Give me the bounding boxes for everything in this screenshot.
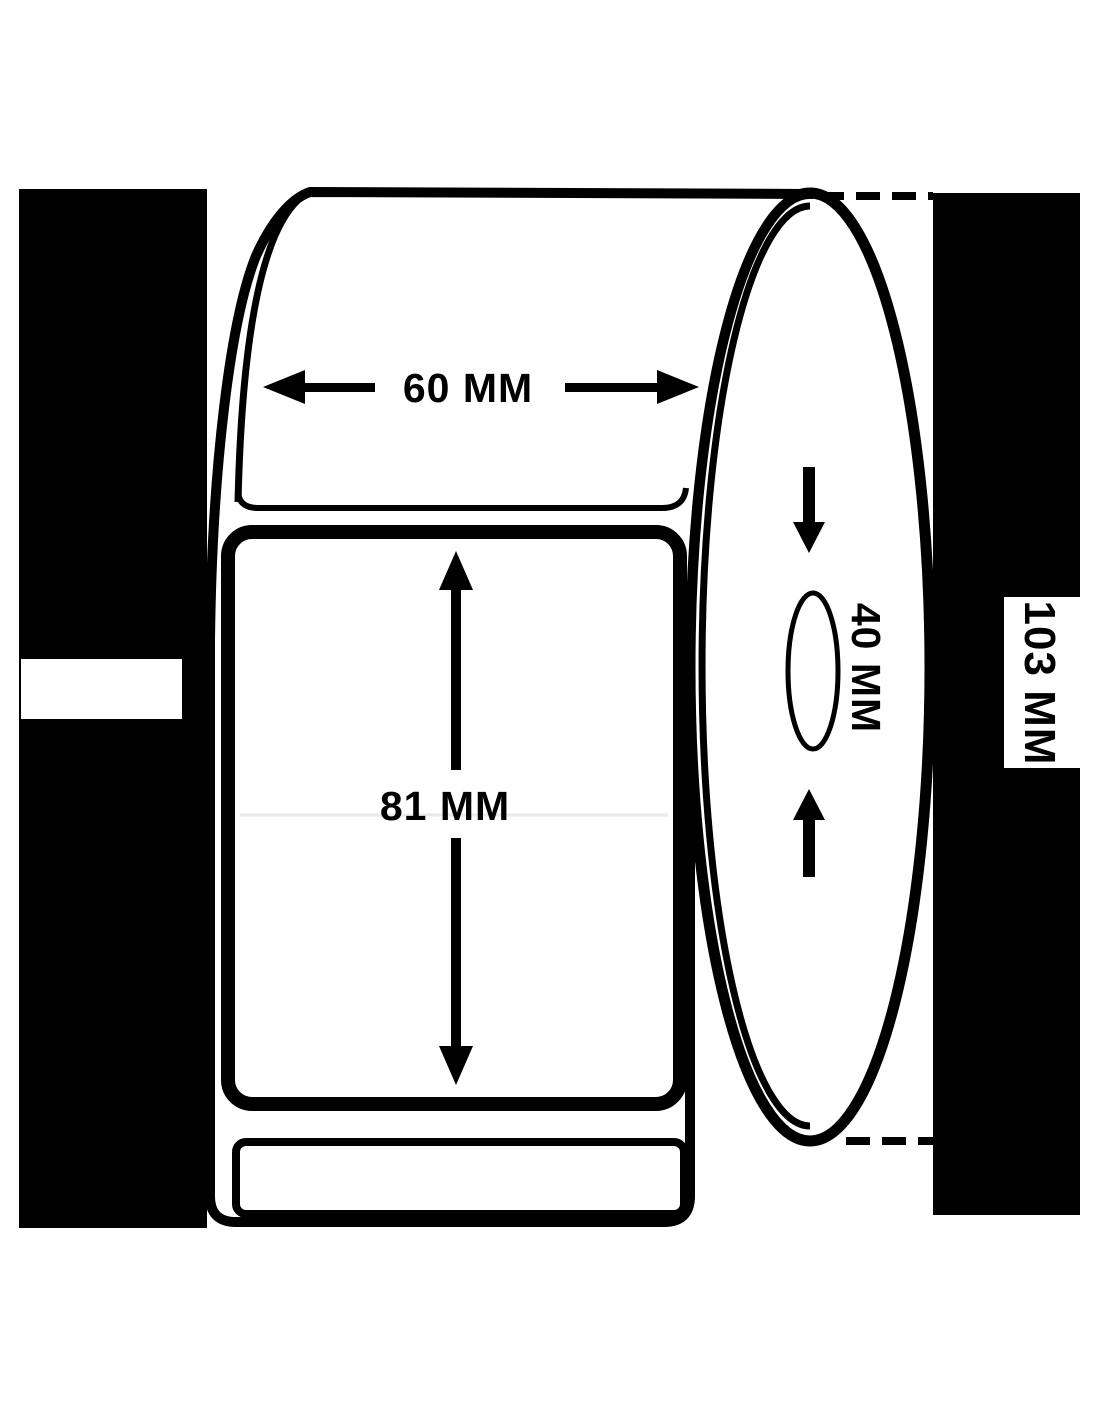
roll-diameter-dimension: 103 MM — [1004, 597, 1083, 768]
core-arrow-up-shaft — [803, 816, 815, 877]
width-arrow-right-shaft — [565, 383, 662, 392]
width-arrow-left-shaft — [300, 383, 375, 392]
core-arrow-down-shaft — [803, 467, 815, 527]
core-ellipse — [788, 593, 838, 749]
core-dimension-label: 40 MM — [843, 603, 889, 733]
left-block-notch — [21, 659, 182, 719]
roll-diameter-label: 103 MM — [1015, 601, 1064, 766]
label-roll-dimension-diagram: 60 MM 81 MM 40 MM 103 MM — [0, 0, 1100, 1422]
height-dimension-label: 81 MM — [380, 783, 510, 829]
diagram-canvas: 60 MM 81 MM 40 MM 103 MM — [0, 0, 1100, 1422]
height-arrow-lower-shaft — [451, 838, 461, 1050]
width-dimension-label: 60 MM — [403, 365, 533, 411]
height-arrow-upper-shaft — [451, 584, 461, 770]
liner-strip — [236, 1142, 684, 1214]
